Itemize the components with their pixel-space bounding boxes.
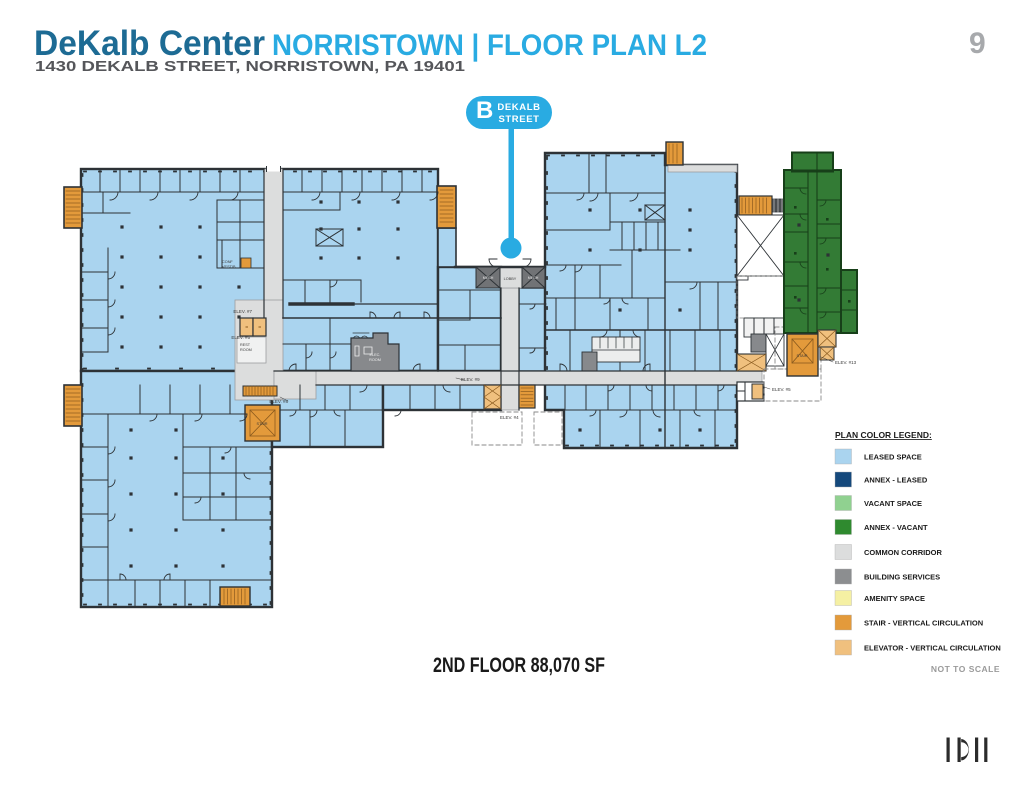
svg-text:NOT TO SCALE: NOT TO SCALE bbox=[931, 664, 1000, 674]
svg-text:1430 DEKALB STREET, NORRISTOWN: 1430 DEKALB STREET, NORRISTOWN, PA 19401 bbox=[35, 58, 465, 75]
svg-text:VESTIB: VESTIB bbox=[222, 265, 236, 269]
svg-text:ELEVATOR - VERTICAL CIRCULATIO: ELEVATOR - VERTICAL CIRCULATION bbox=[864, 644, 1001, 653]
svg-text:ELEV. #5: ELEV. #5 bbox=[772, 387, 791, 392]
svg-text:AMENITY SPACE: AMENITY SPACE bbox=[864, 594, 925, 603]
svg-text:STAIR: STAIR bbox=[257, 422, 268, 426]
svg-text:ANNEX - LEASED: ANNEX - LEASED bbox=[864, 476, 928, 485]
svg-text:LEASED SPACE: LEASED SPACE bbox=[864, 453, 922, 462]
svg-text:VACANT SPACE: VACANT SPACE bbox=[864, 499, 922, 508]
svg-text:DEKALB: DEKALB bbox=[497, 102, 540, 113]
svg-text:ELEV. #13: ELEV. #13 bbox=[835, 360, 857, 365]
svg-text:REST: REST bbox=[240, 343, 251, 347]
svg-text:ELEV. #9: ELEV. #9 bbox=[461, 377, 480, 382]
svg-text:MECH: MECH bbox=[528, 276, 539, 280]
svg-text:ROOM: ROOM bbox=[369, 358, 381, 362]
svg-text:ELEV. #4: ELEV. #4 bbox=[500, 415, 519, 420]
svg-text:MECH: MECH bbox=[483, 276, 494, 280]
svg-text:ELEV. #5: ELEV. #5 bbox=[231, 335, 250, 340]
svg-text:ROOM: ROOM bbox=[240, 348, 252, 352]
svg-text:ELEV. #7: ELEV. #7 bbox=[233, 309, 252, 314]
svg-text:PLAN COLOR LEGEND:: PLAN COLOR LEGEND: bbox=[835, 430, 932, 440]
svg-text:STREET: STREET bbox=[498, 114, 539, 125]
svg-text:LOBBY: LOBBY bbox=[504, 277, 517, 281]
svg-text:9: 9 bbox=[969, 27, 986, 60]
svg-text:CONF: CONF bbox=[222, 260, 233, 264]
svg-text:2ND FLOOR 88,070 SF: 2ND FLOOR 88,070 SF bbox=[433, 654, 605, 677]
svg-text:STAIR - VERTICAL CIRCULATION: STAIR - VERTICAL CIRCULATION bbox=[864, 619, 983, 628]
svg-text:B: B bbox=[476, 97, 493, 124]
svg-text:STAIR: STAIR bbox=[797, 354, 808, 358]
svg-text:COMMON CORRIDOR: COMMON CORRIDOR bbox=[864, 548, 942, 557]
svg-text:ANNEX - VACANT: ANNEX - VACANT bbox=[864, 523, 928, 532]
svg-text:BUILDING SERVICES: BUILDING SERVICES bbox=[864, 573, 940, 582]
svg-text:ELEC.: ELEC. bbox=[370, 353, 381, 357]
